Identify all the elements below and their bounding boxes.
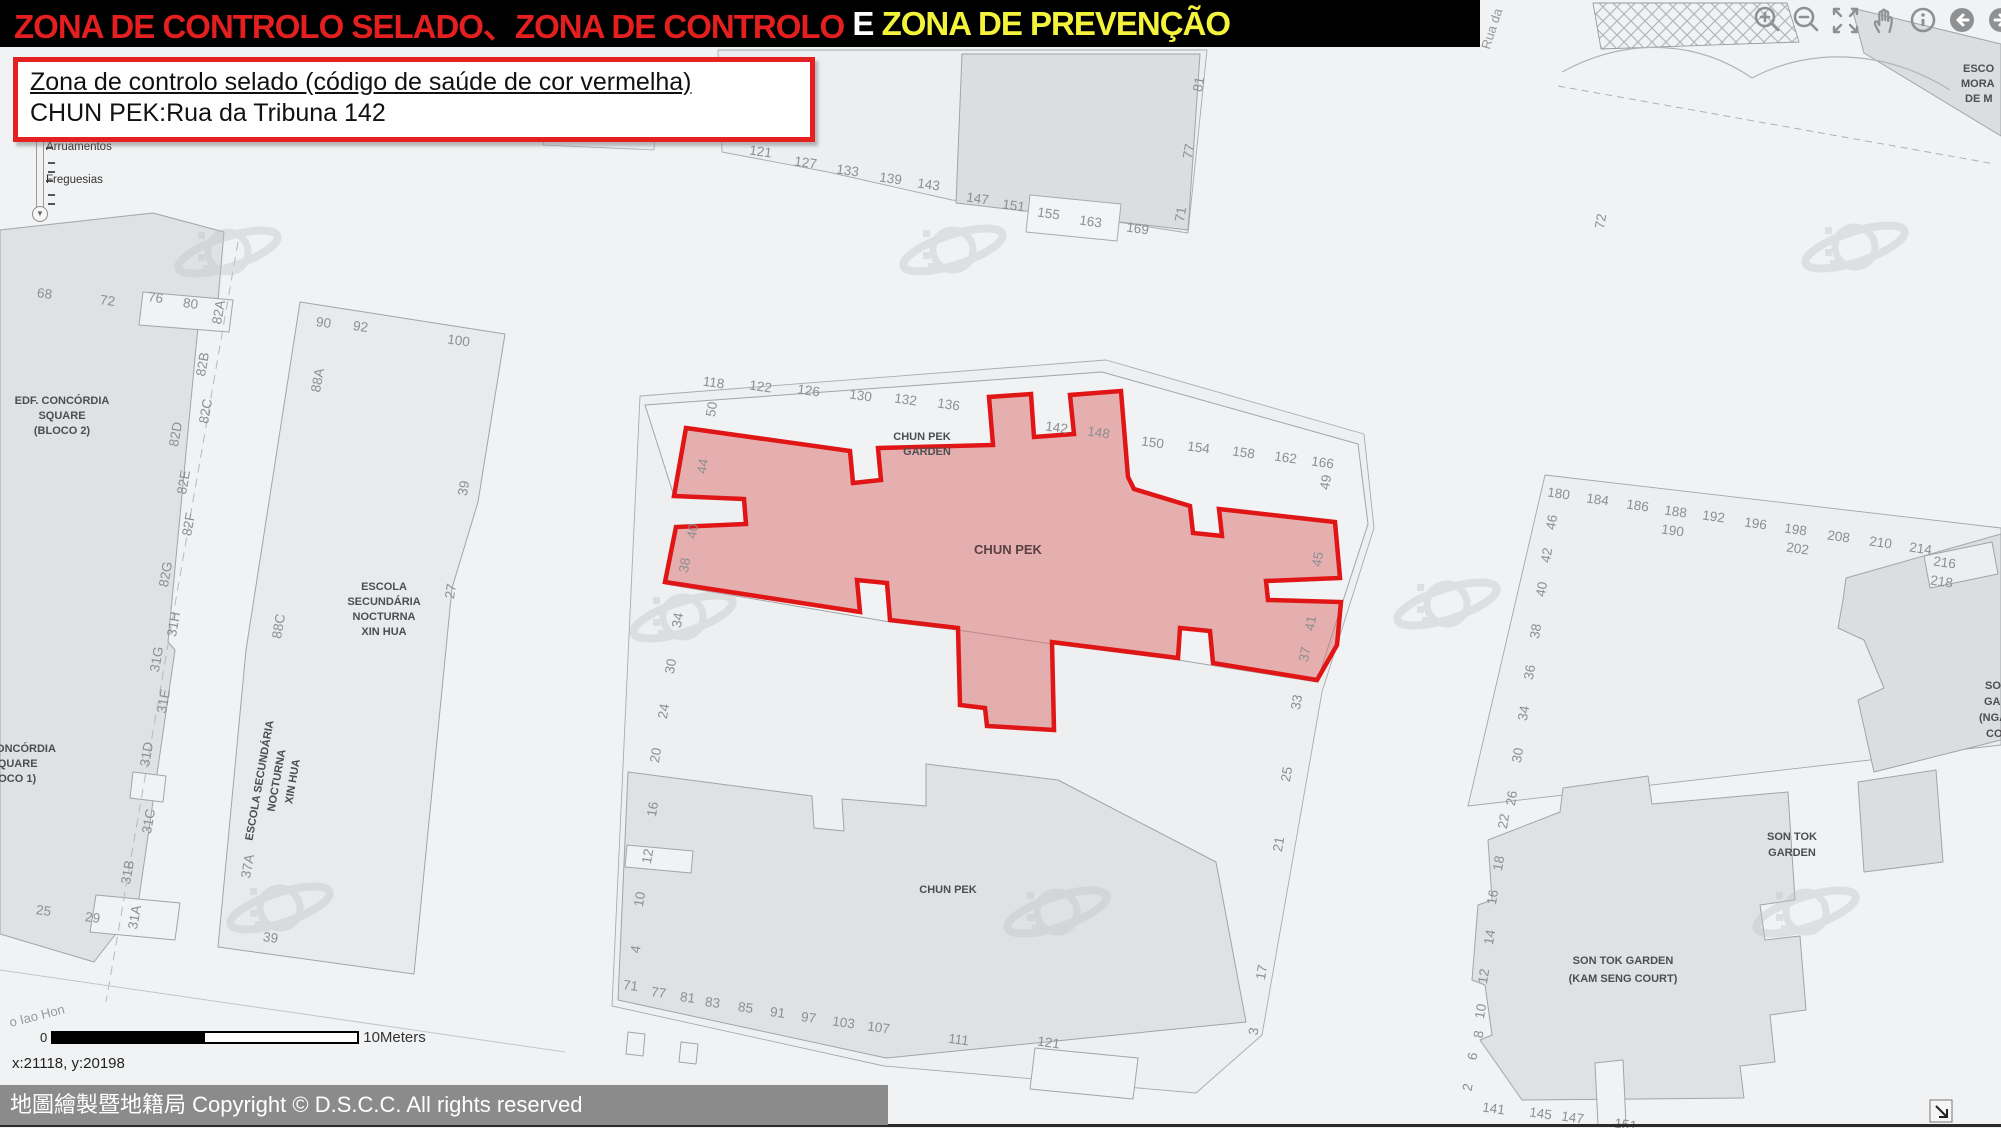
- map-label: 50: [703, 401, 720, 418]
- map-label: 132: [893, 391, 917, 409]
- map-label: 147: [965, 190, 989, 208]
- map-label: 162: [1273, 449, 1297, 467]
- map-label: 33: [1288, 694, 1305, 711]
- map-label: 26: [1503, 790, 1520, 807]
- map-label: CHUN PEK: [974, 542, 1043, 557]
- map-label: 107: [866, 1019, 890, 1037]
- map-label: 188: [1663, 503, 1687, 521]
- map-label: 130: [848, 387, 872, 405]
- map-label: 136: [936, 396, 960, 414]
- map-label: 39: [262, 929, 279, 946]
- map-label: 72: [1592, 213, 1609, 230]
- selected-zone-infobox: Zona de controlo selado (código de saúde…: [13, 57, 815, 142]
- map-label: 30: [662, 658, 679, 675]
- banner-segment: ZONA DE PREVENÇÃO: [882, 5, 1230, 43]
- map-canvas[interactable]: 6872768082A82B82C82D82E82F82G31H31G31E31…: [0, 0, 2001, 1128]
- map-label: CHUN PEK: [893, 431, 951, 443]
- map-label: 18: [1490, 855, 1507, 872]
- toc-collapse-button[interactable]: ▼: [32, 206, 48, 222]
- map-label: 103: [831, 1014, 855, 1032]
- map-label: 45: [1309, 551, 1326, 568]
- zoom-in-button[interactable]: [1750, 3, 1785, 38]
- map-label: 163: [1078, 213, 1102, 231]
- banner-segment: E: [852, 5, 881, 43]
- map-label: 190: [1660, 522, 1684, 540]
- pan-hand-button[interactable]: [1867, 3, 1902, 38]
- map-label: NOCTURNA: [353, 611, 416, 623]
- map-label: 24: [655, 702, 672, 720]
- map-label: 14: [1481, 928, 1498, 946]
- scale-end-label: 10Meters: [363, 1029, 426, 1046]
- map-label: 142: [1044, 419, 1068, 437]
- map-label: 40: [1533, 581, 1550, 598]
- map-label: 145: [1528, 1105, 1552, 1123]
- map-label: 139: [878, 170, 902, 188]
- map-label: 46: [1543, 514, 1560, 531]
- map-label: 10: [1472, 1003, 1489, 1020]
- map-label: GA: [1984, 696, 2001, 708]
- map-label: 68: [36, 285, 53, 302]
- map-label: 40: [684, 523, 701, 540]
- map-label: 34: [669, 611, 686, 629]
- map-label: 77: [1180, 143, 1197, 160]
- tree-node-marker: [48, 171, 55, 173]
- map-label: 38: [1527, 623, 1544, 640]
- map-label: 25: [1278, 766, 1295, 783]
- cursor-coordinates: x:21118, y:20198: [12, 1055, 125, 1072]
- map-label: 147: [1560, 1109, 1584, 1127]
- map-label: 143: [916, 176, 940, 194]
- map-label: 34: [1515, 704, 1532, 722]
- map-label: 202: [1785, 540, 1809, 558]
- zone-type-label: Zona de controlo selado (código de saúde…: [30, 67, 798, 98]
- map-label: 216: [1932, 554, 1956, 572]
- map-label: 81: [679, 989, 696, 1006]
- map-label: 210: [1868, 534, 1892, 552]
- forward-extent-button[interactable]: [1984, 3, 2001, 38]
- scale-bar-graphic: [51, 1031, 359, 1044]
- map-label: 122: [748, 378, 772, 396]
- map-label: 121: [1036, 1034, 1060, 1052]
- map-label: 133: [835, 162, 859, 180]
- map-label: 76: [147, 289, 164, 306]
- map-label: 184: [1585, 491, 1610, 509]
- map-label: 92: [352, 318, 369, 335]
- map-label: SON TOK: [1767, 831, 1817, 843]
- map-label: 118: [702, 374, 725, 392]
- map-label: 186: [1625, 497, 1649, 515]
- tree-node-marker: [48, 162, 55, 164]
- toc-item-arruamentos[interactable]: Arruamentos: [46, 141, 112, 153]
- map-label: 150: [1140, 434, 1164, 452]
- resize-handle-icon[interactable]: [1930, 1100, 1952, 1122]
- map-label: 155: [1036, 205, 1060, 223]
- map-label: GARDEN: [903, 446, 951, 458]
- map-label: 214: [1908, 540, 1933, 558]
- map-label: 208: [1826, 528, 1850, 546]
- map-label: (NGA: [1979, 712, 2001, 724]
- identify-info-button[interactable]: [1906, 3, 1941, 38]
- map-label: 21: [1270, 836, 1287, 853]
- scale-start-label: 0: [40, 1030, 47, 1045]
- map-label: (KAM SENG COURT): [1569, 973, 1678, 985]
- map-label: 154: [1186, 439, 1211, 457]
- map-label: 37: [1296, 646, 1313, 663]
- map-label: 148: [1086, 424, 1110, 442]
- map-label: ESCOLA: [361, 581, 407, 593]
- toc-item-freguesias[interactable]: Freguesias: [46, 174, 103, 186]
- map-toolbar: [1750, 3, 2001, 38]
- map-label: SQUARE: [38, 410, 85, 422]
- map-label: 72: [99, 292, 116, 309]
- map-label: 158: [1231, 444, 1255, 462]
- map-label: 27: [442, 583, 459, 600]
- map-label: XIN HUA: [361, 626, 406, 638]
- full-extent-button[interactable]: [1828, 3, 1863, 38]
- map-label: SON TOK GARDEN: [1573, 955, 1674, 967]
- map-label: ESCO: [1963, 63, 1995, 75]
- copyright-bar: 地圖繪製暨地籍局 Copyright © D.S.C.C. All rights…: [0, 1085, 888, 1125]
- map-label: 38: [676, 557, 693, 574]
- map-label: 80: [182, 295, 199, 312]
- map-label: 44: [694, 457, 711, 475]
- map-label: 166: [1310, 454, 1334, 472]
- map-label: 218: [1929, 573, 1953, 591]
- map-label: MORA: [1961, 78, 1995, 90]
- map-label: 41: [1302, 615, 1319, 632]
- map-label: 30: [1509, 747, 1526, 764]
- alert-banner: ZONA DE CONTROLO SELADO、ZONA DE CONTROLO…: [0, 0, 1480, 47]
- map-label: DE M: [1965, 93, 1993, 105]
- map-label: 16: [1484, 889, 1501, 906]
- map-label: SO: [1985, 680, 2001, 692]
- map-label: 85: [737, 999, 754, 1016]
- map-label: (BLOCO 1): [0, 773, 36, 785]
- map-label: 25: [35, 902, 52, 919]
- gis-application-window: 6872768082A82B82C82D82E82F82G31H31G31E31…: [0, 0, 2001, 1134]
- map-label: 77: [650, 984, 667, 1001]
- zoom-out-button[interactable]: [1789, 3, 1824, 38]
- map-label: 49: [1317, 474, 1334, 491]
- map-label: 97: [800, 1009, 817, 1026]
- map-label: 16: [644, 801, 661, 818]
- map-label: 71: [1172, 206, 1189, 223]
- map-label: 29: [84, 909, 101, 926]
- map-label: 20: [647, 747, 664, 764]
- map-label: SQUARE: [0, 758, 38, 770]
- map-label: 39: [455, 480, 472, 497]
- map-label: 196: [1743, 515, 1767, 533]
- map-label: 17: [1253, 964, 1270, 981]
- map-label: SECUNDÁRIA: [347, 595, 420, 608]
- map-label: 198: [1783, 521, 1807, 539]
- map-label: 111: [947, 1031, 969, 1049]
- map-label: GARDEN: [1768, 847, 1816, 859]
- map-label: 12: [639, 848, 656, 865]
- map-label: 180: [1546, 485, 1570, 503]
- map-label: 36: [1521, 664, 1538, 681]
- map-label: CHUN PEK: [919, 884, 977, 896]
- map-label: 12: [1475, 968, 1492, 985]
- map-label: (BLOCO 2): [34, 425, 91, 437]
- map-label: 42: [1538, 547, 1555, 564]
- map-label: 71: [622, 977, 639, 994]
- map-label: CONCÓRDIA: [0, 742, 56, 755]
- map-label: EDF. CONCÓRDIA: [15, 394, 110, 407]
- map-label: 100: [446, 332, 470, 350]
- banner-segment: ZONA DE CONTROLO SELADO、ZONA DE CONTROLO: [14, 0, 852, 48]
- map-label: 192: [1701, 508, 1725, 526]
- map-label: 83: [704, 994, 721, 1011]
- zone-address-label: CHUN PEK:Rua da Tribuna 142: [30, 98, 798, 129]
- map-label: 10: [631, 891, 648, 908]
- map-label: 90: [315, 314, 332, 331]
- scale-bar: 0 10Meters: [40, 1029, 426, 1046]
- map-label: 141: [1481, 1100, 1505, 1118]
- map-label: 127: [793, 154, 817, 172]
- map-label: 22: [1495, 813, 1512, 830]
- map-label: 169: [1125, 220, 1149, 238]
- map-label: 81: [1190, 76, 1207, 93]
- map-label: CO: [1986, 728, 2001, 740]
- back-extent-button[interactable]: [1945, 3, 1980, 38]
- map-label: 151: [1001, 197, 1025, 215]
- map-label: 121: [748, 143, 772, 161]
- tree-node-marker: [48, 203, 55, 205]
- tree-node-marker: [48, 194, 55, 196]
- map-label: 126: [796, 382, 820, 400]
- map-label: 91: [769, 1004, 786, 1021]
